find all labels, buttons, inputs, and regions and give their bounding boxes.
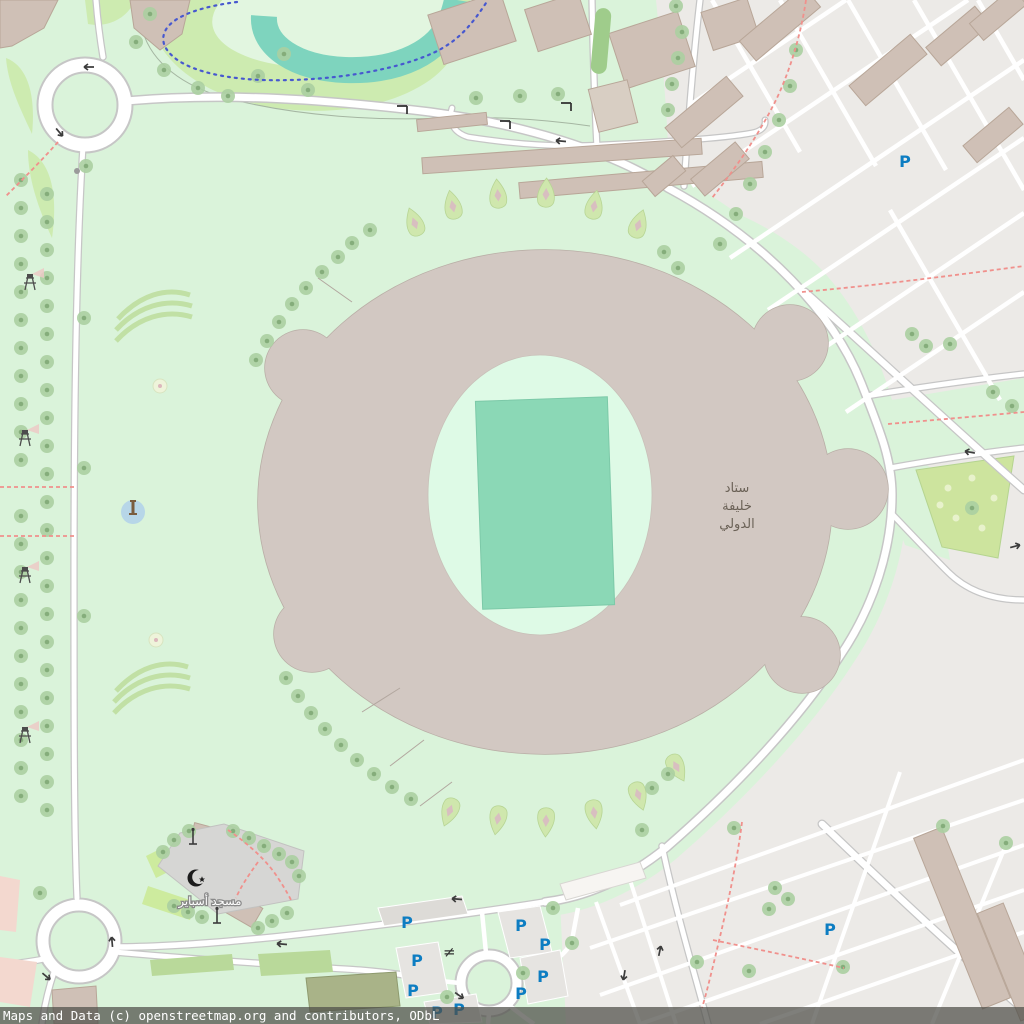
parking-icon: P [539, 935, 551, 954]
mosque-label: مسجد أسباير [178, 893, 242, 909]
map-canvas[interactable]: ≠ ستاد خليفة الدولي مسجد أسباير P P P P … [0, 0, 1024, 1024]
stadium-label: الدولي [719, 517, 754, 532]
parking-icon: P [899, 152, 911, 171]
fountain-icon [121, 500, 145, 524]
parking-icon: P [411, 951, 423, 970]
attribution: Maps and Data (c) openstreetmap.org and … [0, 1007, 1024, 1024]
stadium-pitch [475, 397, 614, 609]
parking-icon: P [515, 984, 527, 1003]
mini-roundabout-dot [74, 168, 80, 174]
map-container: ≠ ستاد خليفة الدولي مسجد أسباير P P P P … [0, 0, 1024, 1024]
parking-icon: P [407, 981, 419, 1000]
parking-icon: P [515, 916, 527, 935]
parking-icon: P [537, 967, 549, 986]
lift-gate-icon: ≠ [443, 943, 456, 961]
stadium-label: ستاد [725, 481, 750, 496]
parking-icon: P [824, 920, 836, 939]
stadium-label: خليفة [722, 499, 752, 514]
parking-icon: P [401, 913, 413, 932]
